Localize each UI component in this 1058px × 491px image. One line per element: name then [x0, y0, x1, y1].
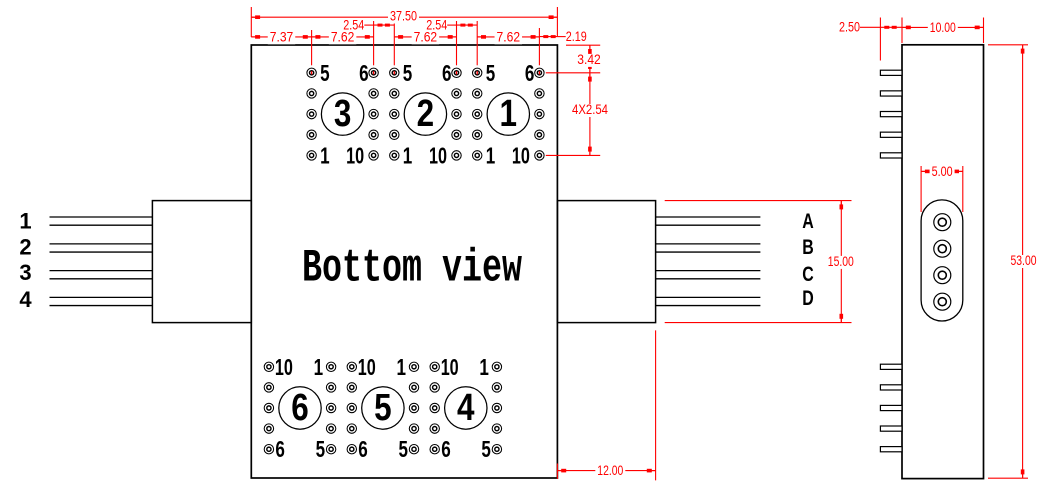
svg-text:1: 1 [403, 142, 413, 168]
svg-text:4X2.54: 4X2.54 [572, 101, 608, 117]
svg-text:1: 1 [397, 354, 407, 380]
svg-text:A: A [802, 210, 814, 233]
svg-text:1: 1 [320, 142, 330, 168]
svg-text:7.37: 7.37 [270, 28, 294, 44]
svg-text:Bottom view: Bottom view [302, 243, 522, 295]
svg-text:6: 6 [442, 60, 452, 86]
svg-text:10: 10 [346, 142, 364, 168]
svg-text:6: 6 [441, 436, 451, 462]
svg-text:1: 1 [314, 354, 324, 380]
svg-text:5: 5 [316, 436, 326, 462]
svg-text:2: 2 [19, 235, 31, 260]
svg-text:10: 10 [441, 354, 459, 380]
svg-text:10: 10 [512, 142, 530, 168]
svg-text:7.62: 7.62 [414, 28, 438, 44]
svg-text:6: 6 [275, 436, 285, 462]
svg-text:5: 5 [320, 60, 330, 86]
svg-text:10.00: 10.00 [930, 19, 956, 35]
svg-text:3.42: 3.42 [577, 51, 601, 67]
svg-text:7.62: 7.62 [497, 28, 521, 44]
svg-text:6: 6 [525, 60, 535, 86]
svg-text:2: 2 [417, 93, 435, 135]
svg-text:5: 5 [403, 60, 413, 86]
svg-text:6: 6 [358, 436, 368, 462]
svg-text:1: 1 [500, 93, 518, 135]
svg-text:15.00: 15.00 [828, 253, 854, 269]
svg-text:10: 10 [429, 142, 447, 168]
svg-text:D: D [802, 287, 814, 310]
svg-text:6: 6 [291, 387, 309, 429]
svg-text:5: 5 [486, 60, 496, 86]
svg-text:5: 5 [481, 436, 491, 462]
svg-text:37.50: 37.50 [390, 8, 417, 24]
svg-text:10: 10 [275, 354, 293, 380]
svg-text:12.00: 12.00 [597, 462, 623, 478]
svg-text:6: 6 [359, 60, 369, 86]
svg-text:53.00: 53.00 [1011, 252, 1037, 268]
svg-text:4: 4 [19, 287, 32, 312]
svg-text:10: 10 [358, 354, 376, 380]
svg-text:1: 1 [486, 142, 496, 168]
svg-text:5: 5 [399, 436, 409, 462]
svg-text:C: C [802, 263, 814, 286]
svg-text:1: 1 [19, 209, 31, 234]
svg-text:B: B [802, 236, 814, 259]
svg-text:2.50: 2.50 [839, 19, 860, 35]
svg-text:2.19: 2.19 [566, 28, 587, 44]
svg-text:3: 3 [334, 93, 352, 135]
svg-text:5.00: 5.00 [932, 163, 953, 179]
svg-text:3: 3 [19, 260, 31, 285]
svg-text:1: 1 [479, 354, 489, 380]
svg-text:7.62: 7.62 [331, 28, 355, 44]
svg-text:5: 5 [374, 387, 392, 429]
svg-text:4: 4 [457, 387, 475, 429]
